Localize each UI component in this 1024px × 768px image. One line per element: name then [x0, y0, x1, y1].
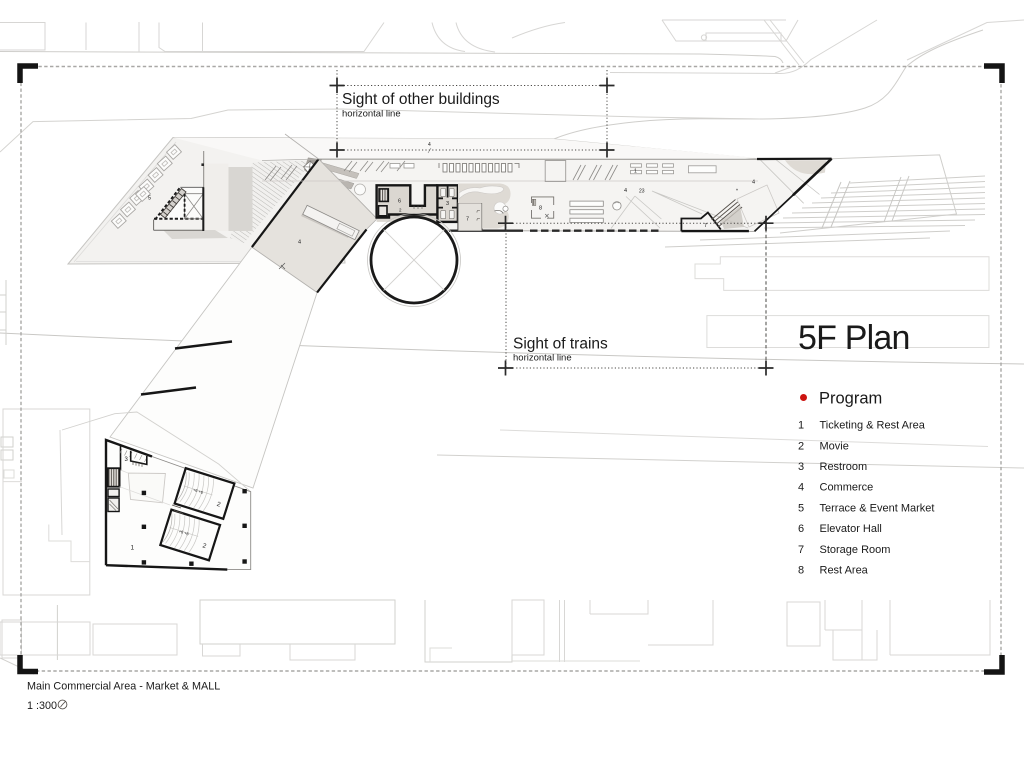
svg-text:7: 7 [798, 544, 804, 556]
svg-text:Storage Room: Storage Room [820, 544, 891, 556]
svg-text:3: 3 [446, 201, 449, 207]
svg-text:7: 7 [704, 223, 707, 229]
svg-text:4: 4 [798, 482, 804, 494]
svg-text:8: 8 [798, 565, 804, 577]
svg-text:3: 3 [798, 461, 804, 473]
svg-text:Movie: Movie [820, 440, 849, 452]
svg-text:5F Plan: 5F Plan [798, 319, 910, 357]
svg-text:1 :300: 1 :300 [27, 700, 57, 712]
svg-text:2: 2 [798, 440, 804, 452]
svg-text:4: 4 [428, 142, 431, 148]
svg-text:Restroom: Restroom [820, 461, 868, 473]
svg-text:Elevator Hall: Elevator Hall [820, 523, 882, 535]
svg-text:Terrace & Event Market: Terrace & Event Market [820, 502, 935, 514]
svg-text:4: 4 [298, 240, 301, 246]
svg-text:*: * [736, 189, 738, 195]
svg-text:8: 8 [539, 206, 542, 212]
svg-text:7: 7 [466, 217, 469, 223]
svg-text:6: 6 [398, 199, 401, 205]
svg-text:Sight of trains: Sight of trains [513, 336, 608, 353]
svg-text:5: 5 [798, 502, 804, 514]
svg-text:5: 5 [148, 196, 151, 202]
svg-text:6: 6 [798, 523, 804, 535]
svg-text:horizontal line: horizontal line [342, 109, 401, 120]
svg-text:Ticketing & Rest Area: Ticketing & Rest Area [820, 420, 926, 432]
svg-text:1: 1 [634, 169, 637, 175]
svg-text:Sight of other buildings: Sight of other buildings [342, 91, 500, 108]
svg-text:Program: Program [819, 390, 882, 408]
svg-text:1: 1 [131, 545, 135, 552]
svg-text:Rest Area: Rest Area [820, 565, 869, 577]
svg-text:23: 23 [639, 189, 645, 195]
svg-text:4: 4 [624, 188, 627, 194]
svg-text:1: 1 [798, 420, 804, 432]
svg-text:Main Commercial Area - Market: Main Commercial Area - Market & MALL [27, 681, 220, 693]
svg-text:Commerce: Commerce [820, 482, 874, 494]
svg-text:horizontal line: horizontal line [513, 353, 572, 364]
svg-text:4: 4 [752, 180, 755, 186]
